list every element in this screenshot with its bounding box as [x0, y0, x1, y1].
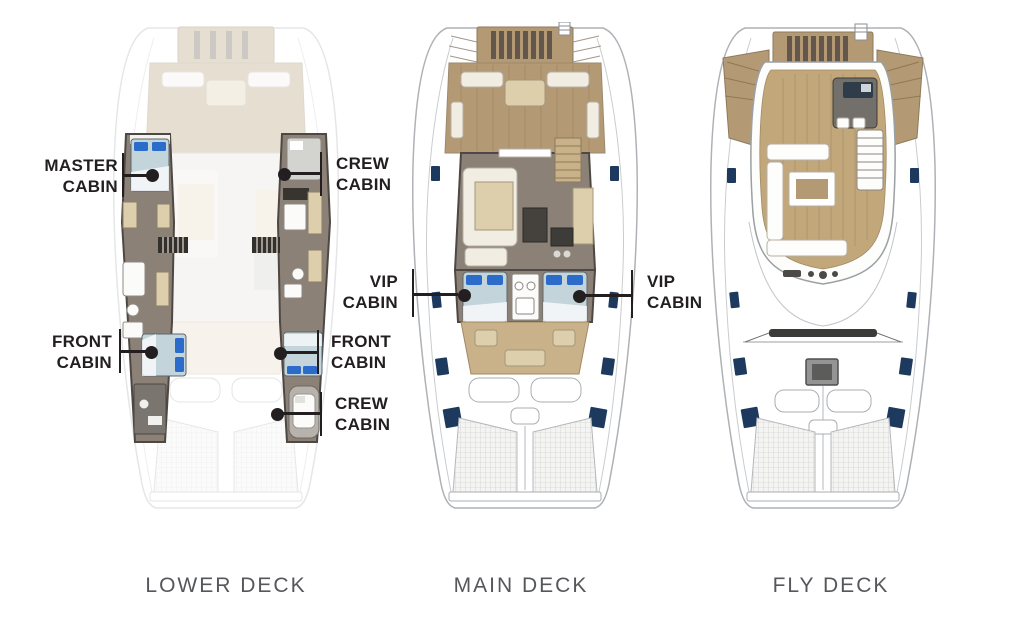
callout-leader-line	[121, 350, 147, 353]
stern-ladder-icon	[559, 22, 570, 35]
callout-dot	[146, 169, 159, 182]
yacht-deck-plans-figure: MASTER CABIN CREW CABIN FRONT CABIN FRON…	[0, 0, 1024, 624]
salon-stairs	[555, 138, 581, 182]
port-stairs	[158, 237, 188, 253]
salon	[455, 138, 595, 270]
callout-dot	[145, 346, 158, 359]
callout-front-cabin-port-label: FRONT CABIN	[24, 331, 112, 373]
starboard-stairs	[252, 237, 280, 253]
callout-crew-cabin-aft-label: CREW CABIN	[336, 153, 391, 195]
callout-leader-line	[283, 412, 321, 415]
lower-deck-title: LOWER DECK	[126, 574, 326, 598]
bow-foyer	[461, 322, 589, 374]
fly-deck-title: FLY DECK	[731, 574, 931, 598]
flybridge	[751, 62, 895, 284]
galley-counter	[573, 188, 593, 244]
callout-dot	[458, 289, 471, 302]
helm-station	[833, 78, 877, 128]
main-deck-title: MAIN DECK	[421, 574, 621, 598]
callout-leader-line	[414, 293, 458, 296]
callout-front-cabin-starboard-label: FRONT CABIN	[331, 331, 391, 373]
main-deck-plan	[405, 22, 645, 522]
galley-island	[523, 208, 547, 242]
flybridge-sofa	[767, 144, 829, 160]
callout-vip-cabin-starboard-label: VIP CABIN	[647, 271, 702, 313]
callout-leader-line	[286, 351, 318, 354]
callout-tick	[317, 330, 319, 374]
callout-tick	[631, 270, 633, 318]
flybridge-stairs	[857, 130, 883, 190]
callout-tick	[320, 152, 322, 196]
callout-leader-line	[288, 172, 321, 175]
callout-crew-cabin-bow-label: CREW CABIN	[335, 393, 390, 435]
fly-deck-plan	[703, 22, 943, 522]
callout-leader-line	[585, 294, 631, 297]
master-cabin-bed	[131, 139, 169, 191]
boom	[769, 329, 877, 337]
salon-table	[475, 182, 513, 230]
callout-master-cabin-label: MASTER CABIN	[30, 155, 118, 197]
callout-vip-cabin-port-label: VIP CABIN	[310, 271, 398, 313]
callout-tick	[320, 392, 322, 436]
